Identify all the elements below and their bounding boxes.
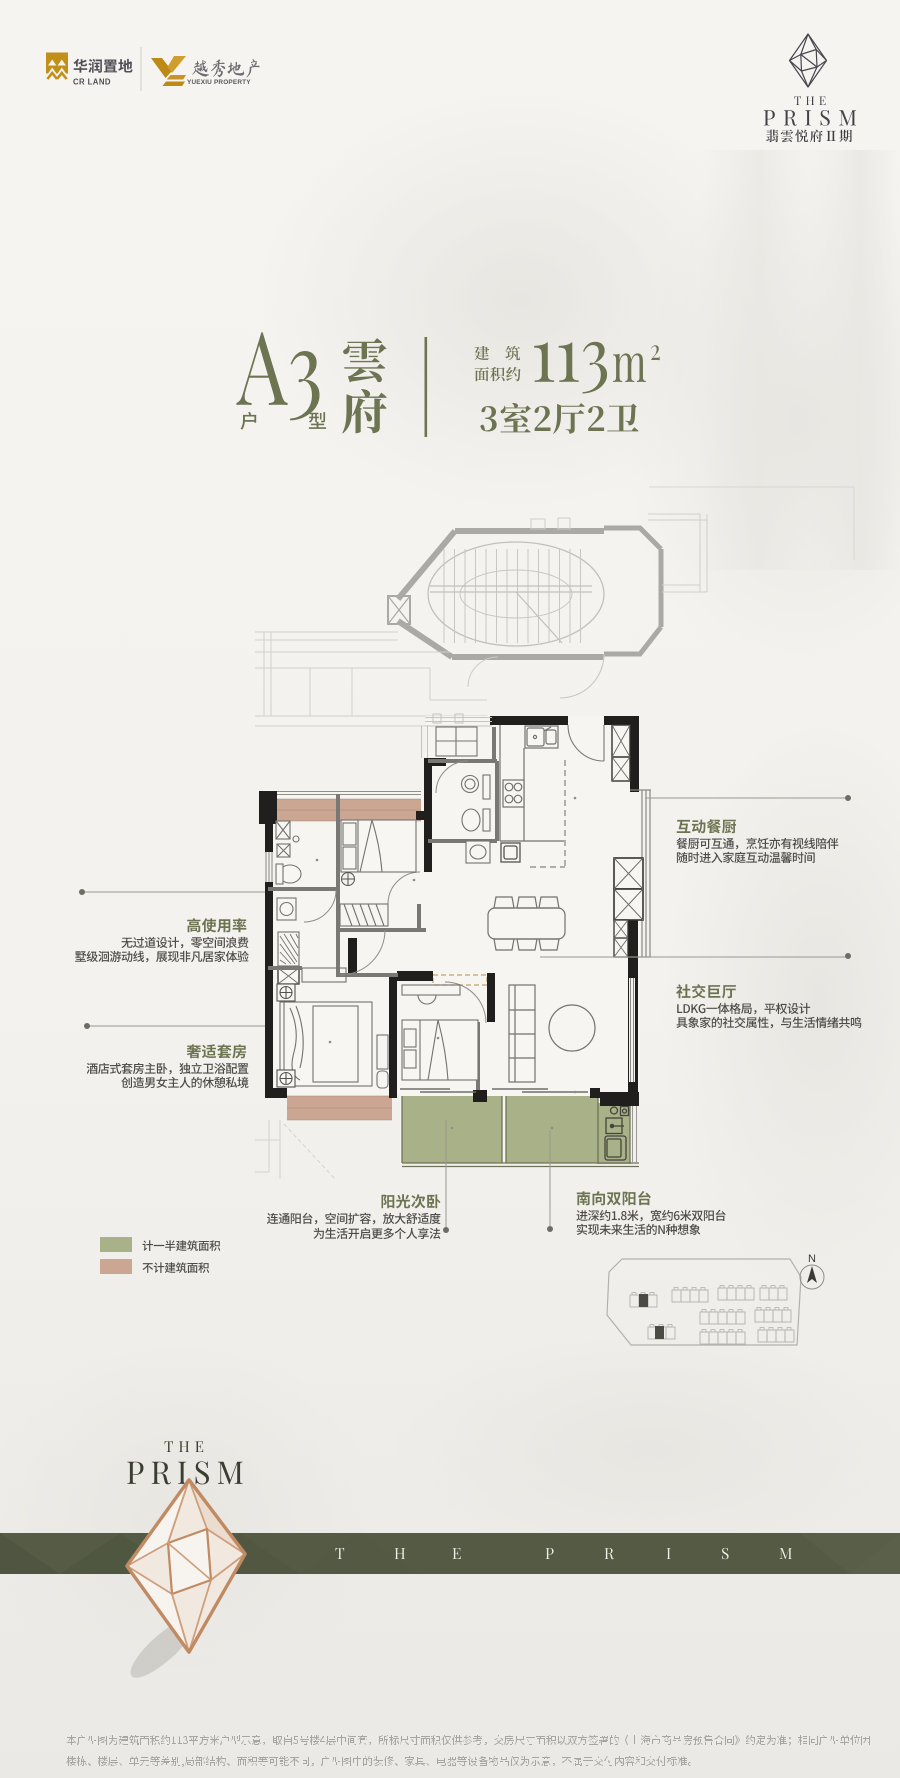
svg-text:N: N: [808, 1253, 816, 1265]
svg-text:CR LAND: CR LAND: [73, 78, 111, 87]
svg-text:YUEXIU PROPERTY: YUEXIU PROPERTY: [187, 79, 251, 86]
